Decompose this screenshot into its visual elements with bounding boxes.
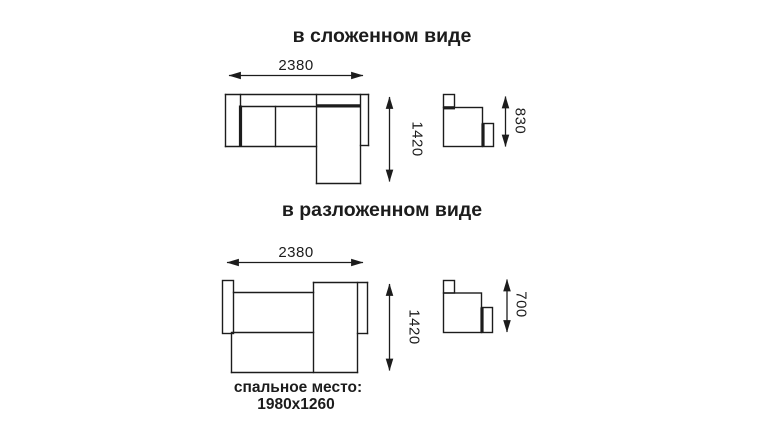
unfolded-side-backrest-top [444,281,455,294]
unfolded-plan-view [223,281,368,373]
folded-side-body [444,108,483,147]
folded-height-label: 830 [512,108,529,135]
folded-plan-view [226,95,369,184]
unfolded-width-label: 2380 [278,244,313,261]
sofa-technical-drawing: в сложенном виде 2380 [0,0,770,433]
unfolded-side-view [444,281,493,333]
folded-side-view [443,95,494,147]
folded-side-backrest-top [444,95,455,108]
folded-width-label: 2380 [278,57,313,74]
unfolded-plan-left-armrest [223,281,234,334]
sleeping-area-label: спальное место: [234,379,362,396]
sleeping-area-size: 1980x1260 [257,396,335,413]
unfolded-title: в разложенном виде [282,199,482,221]
folded-depth-label: 1420 [409,121,426,156]
folded-section: в сложенном виде 2380 [226,25,529,184]
unfolded-depth-label: 1420 [406,309,423,344]
sofa-dimensions-svg: в сложенном виде 2380 [0,0,770,433]
folded-title: в сложенном виде [293,25,472,47]
unfolded-height-label: 700 [513,291,530,318]
unfolded-side-body [444,293,482,333]
unfolded-section: в разложенном виде 2380 1420 [223,199,530,413]
